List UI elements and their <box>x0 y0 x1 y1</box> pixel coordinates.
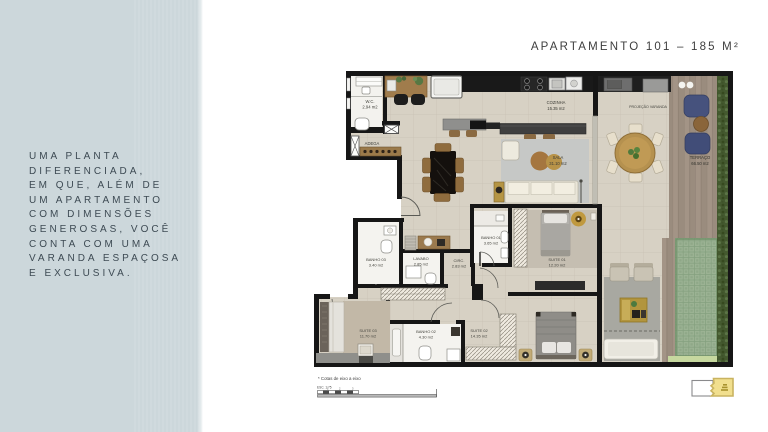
svg-text:COZINHA: COZINHA <box>547 100 566 105</box>
svg-text:TERRAÇO: TERRAÇO <box>690 155 711 160</box>
svg-text:2.94 m2: 2.94 m2 <box>362 105 378 110</box>
svg-text:2: 2 <box>339 386 341 390</box>
svg-text:SUITE 02: SUITE 02 <box>470 328 488 333</box>
svg-text:3: 3 <box>352 386 354 390</box>
svg-text:BANHO 01: BANHO 01 <box>481 235 502 240</box>
svg-text:12.20 m2: 12.20 m2 <box>549 263 566 268</box>
svg-text:BANHO 02: BANHO 02 <box>416 329 437 334</box>
svg-text:31.10 m2: 31.10 m2 <box>549 161 567 166</box>
svg-text:LAVABO: LAVABO <box>413 256 428 261</box>
svg-text:BANHO 03: BANHO 03 <box>366 257 387 262</box>
svg-text:66.50 m2: 66.50 m2 <box>691 161 709 166</box>
svg-text:CIRC.: CIRC. <box>454 258 465 263</box>
svg-text:14.35 m2: 14.35 m2 <box>471 334 488 339</box>
svg-text:SUITE 03: SUITE 03 <box>359 328 377 333</box>
svg-text:3.65 m2: 3.65 m2 <box>484 241 499 246</box>
svg-text:ESC. 1:75: ESC. 1:75 <box>317 386 332 390</box>
svg-text:PROJEÇÃO VARANDA: PROJEÇÃO VARANDA <box>629 104 667 109</box>
svg-text:2.83 m2: 2.83 m2 <box>452 264 467 269</box>
svg-text:15.35 m2: 15.35 m2 <box>547 106 565 111</box>
svg-text:11.70 m2: 11.70 m2 <box>360 334 377 339</box>
svg-text:2.85 m2: 2.85 m2 <box>414 262 429 267</box>
svg-text:3.40 m2: 3.40 m2 <box>369 263 384 268</box>
svg-text:SUITE 01: SUITE 01 <box>548 257 566 262</box>
svg-text:ADEGA: ADEGA <box>365 141 380 146</box>
svg-text:W.C.: W.C. <box>365 99 374 104</box>
svg-text:4.30 m2: 4.30 m2 <box>419 335 434 340</box>
svg-text:SALA: SALA <box>553 155 564 160</box>
svg-text:* Cotas de eixo a eixo: * Cotas de eixo a eixo <box>318 376 361 381</box>
